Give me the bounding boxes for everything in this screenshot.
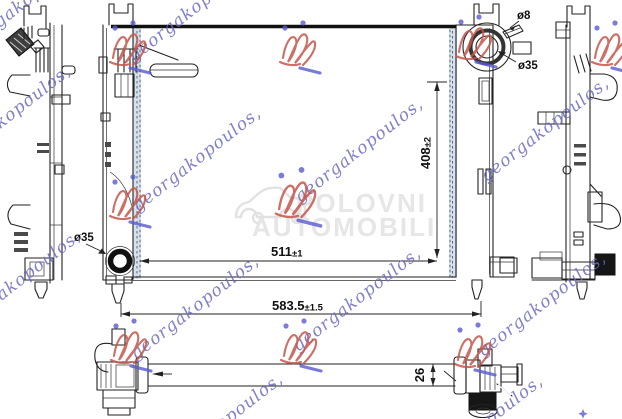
dim-bleed-pipe-label: ø8 <box>517 10 531 22</box>
sparkle-icon <box>578 409 588 419</box>
radiator-drawing-canvas: POLOVNI AUTOMOBILI <box>0 0 622 419</box>
outlet-port-ring <box>111 252 130 271</box>
dim-filler-neck-label: ø35 <box>518 60 538 72</box>
watermark-script: georgakopoulos, <box>127 251 264 364</box>
dim-core-width-label: 511±1 <box>271 244 303 260</box>
watermark-script: georgakopoulos, <box>0 61 75 174</box>
watermark-brand: POLOVNI AUTOMOBILI <box>236 188 436 242</box>
watermark-script: georgakopoulos, <box>125 0 262 66</box>
watermark-script: georgakopoulos, <box>129 103 266 216</box>
watermark-script: georgakopoulos, <box>477 73 614 186</box>
dim-thickness-label: 26 <box>412 368 427 382</box>
dim-overall-width-label: 583.5±1.5 <box>272 298 324 314</box>
watermark-logo <box>455 322 495 375</box>
watermark-script: georgakopoulos, <box>474 248 611 361</box>
dim-height-label: 408±2 <box>418 137 434 169</box>
watermark-logo <box>280 20 320 73</box>
watermark-logo <box>592 20 622 73</box>
technical-drawing: POLOVNI AUTOMOBILI <box>0 0 622 419</box>
watermark-script: georgakopoulos, <box>151 369 288 419</box>
